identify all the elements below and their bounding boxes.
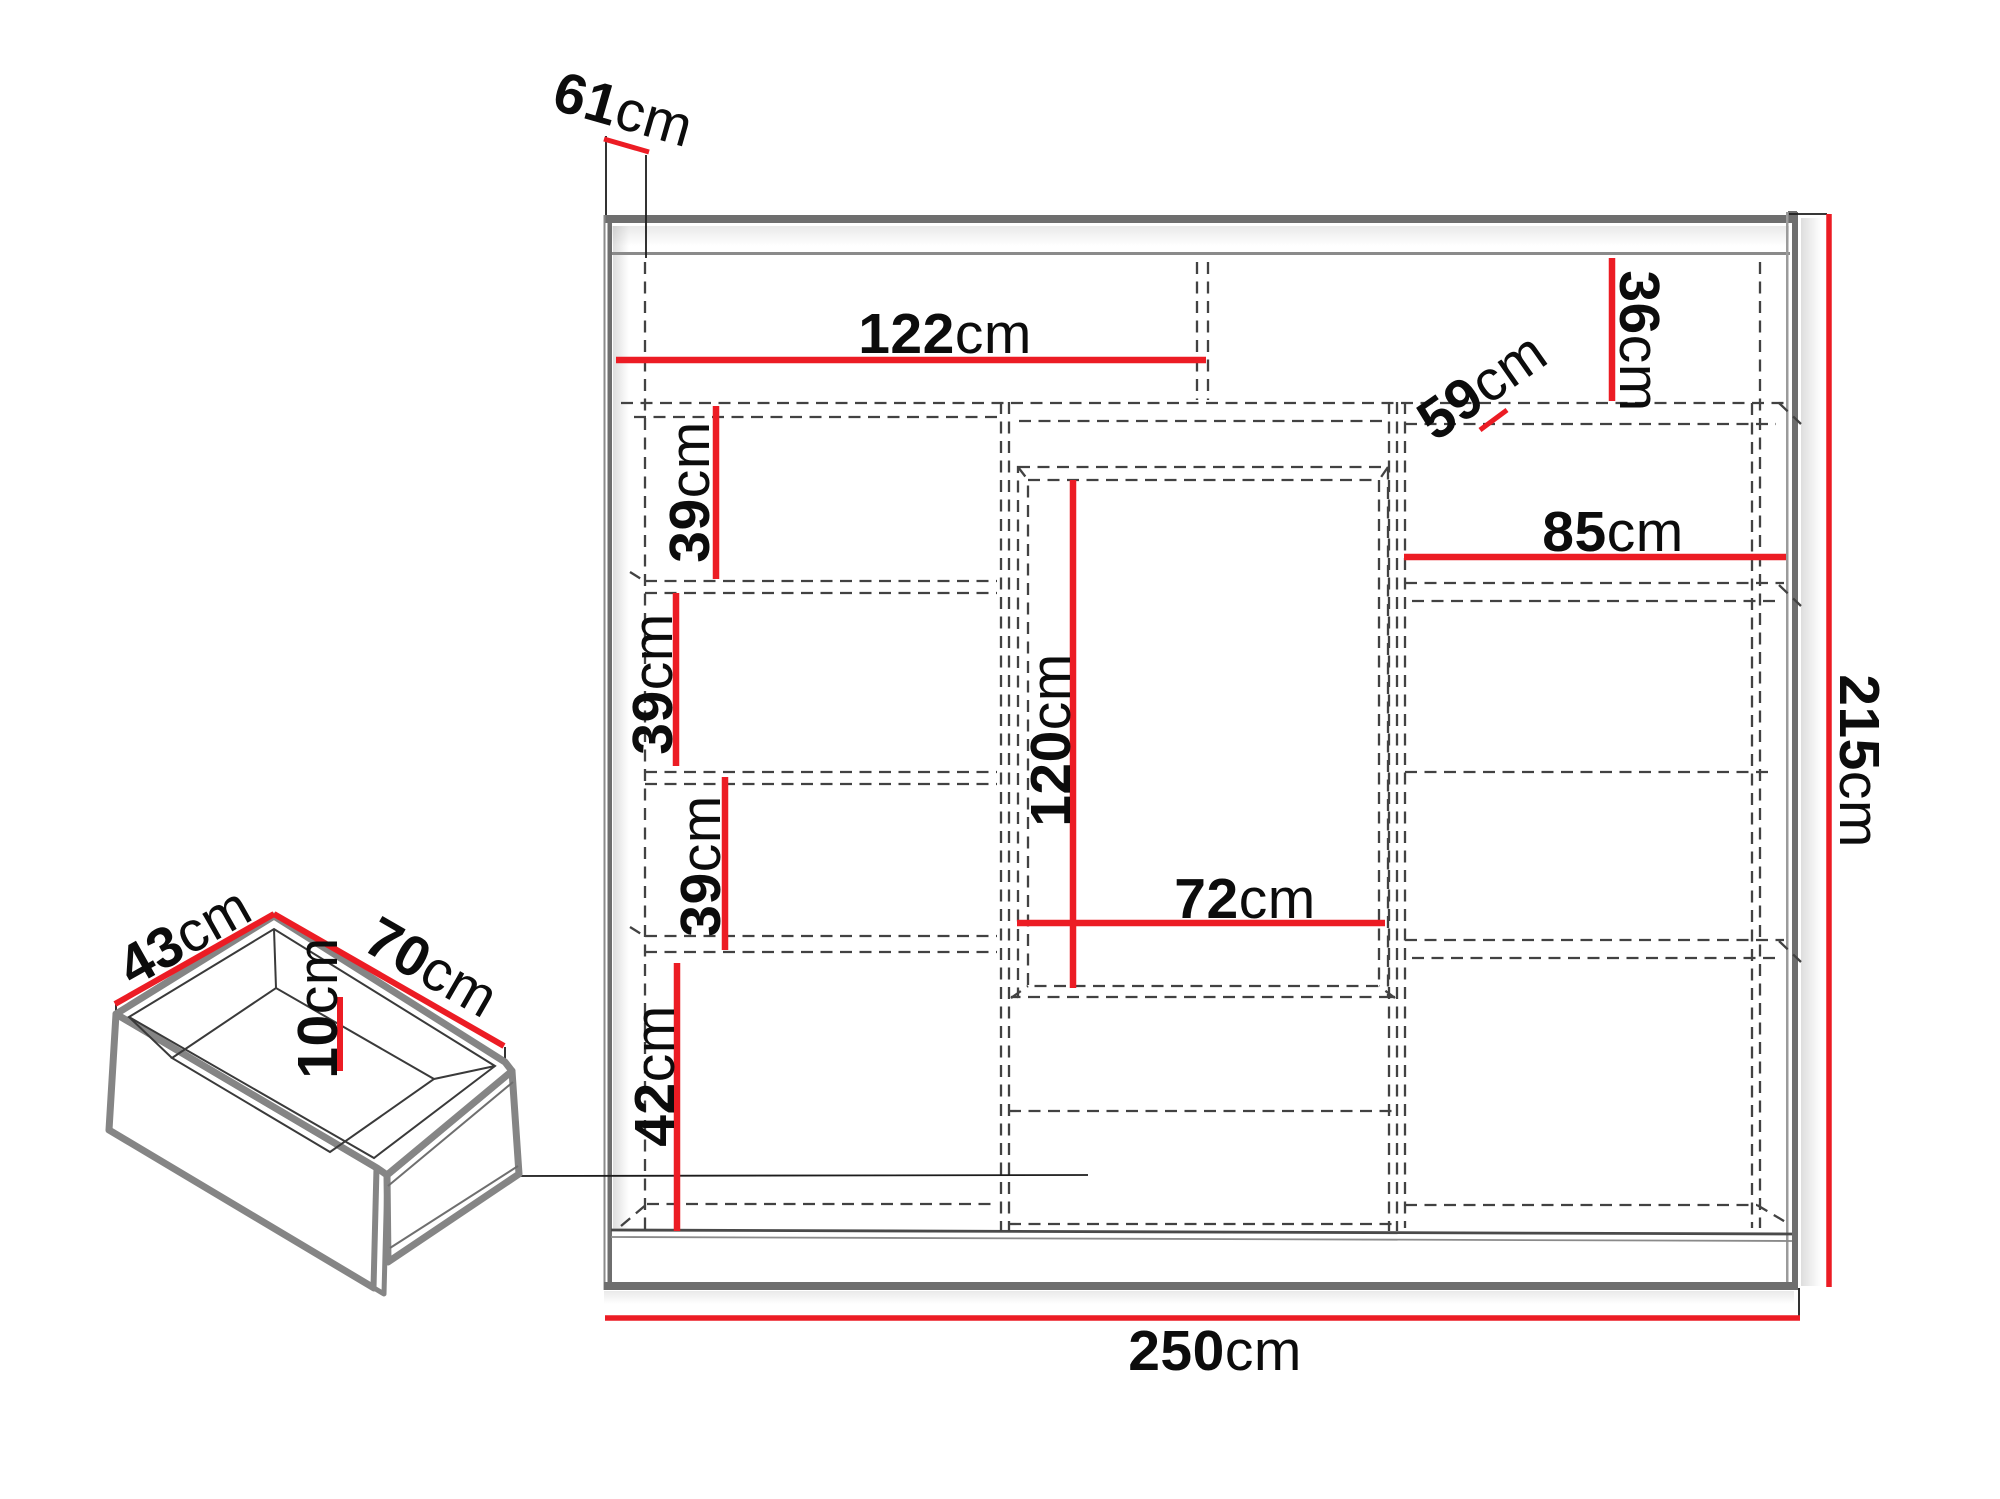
svg-text:59cm: 59cm <box>1406 320 1559 454</box>
svg-text:215cm: 215cm <box>1827 674 1891 848</box>
svg-text:42cm: 42cm <box>623 1005 687 1146</box>
svg-text:85cm: 85cm <box>1542 500 1683 564</box>
svg-text:39cm: 39cm <box>658 421 722 562</box>
svg-text:39cm: 39cm <box>669 795 733 936</box>
svg-text:10cm: 10cm <box>286 937 350 1078</box>
svg-text:120cm: 120cm <box>1019 653 1083 827</box>
svg-text:122cm: 122cm <box>858 302 1032 366</box>
svg-text:250cm: 250cm <box>1128 1319 1302 1383</box>
svg-text:36cm: 36cm <box>1607 270 1671 411</box>
svg-text:39cm: 39cm <box>621 613 685 754</box>
svg-text:72cm: 72cm <box>1174 867 1315 931</box>
